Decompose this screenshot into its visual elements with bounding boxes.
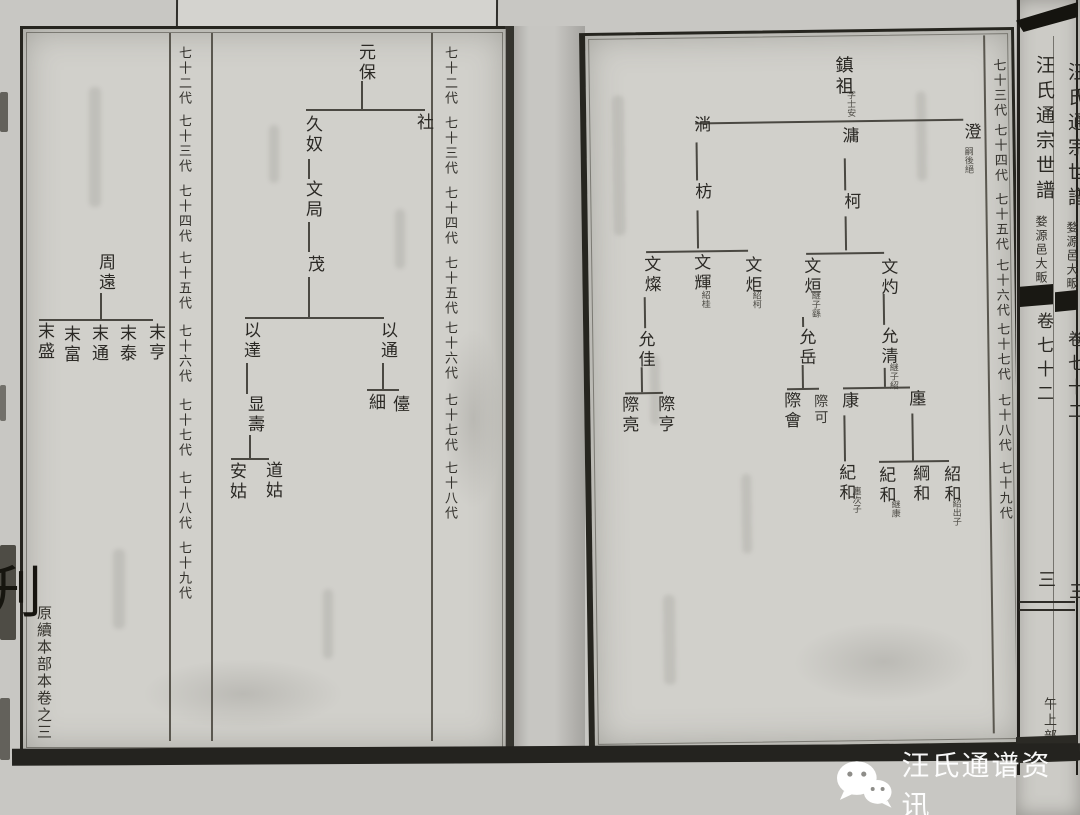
- connector-line: [845, 216, 847, 250]
- connector-line: [787, 388, 819, 390]
- connector-line: [879, 460, 949, 463]
- generation-label: 七十六代: [992, 258, 1012, 318]
- connector-line: [306, 109, 425, 111]
- left-page: 七十二代 七十三代 七十四代 七十五代 七十六代 七十七代 七十八代 七十九代 …: [20, 26, 514, 754]
- tree-node-annotation: 廛次子: [850, 486, 863, 513]
- page-number: 三: [1033, 570, 1059, 588]
- connector-line: [802, 317, 804, 327]
- tree-node: 久奴: [300, 115, 325, 155]
- tree-node: 元保: [353, 43, 378, 83]
- tree-node-annotation: 継子繇: [810, 291, 823, 318]
- connector-line: [231, 458, 269, 460]
- tree-node-annotation: 紹柯: [751, 291, 764, 309]
- tree-node-annotation: 紹出子: [951, 499, 964, 526]
- generation-label: 七十四代: [990, 123, 1010, 183]
- connector-line: [308, 222, 310, 252]
- connector-line: [883, 294, 885, 325]
- bleed-through-stain: [612, 95, 626, 235]
- tree-node: 安姑: [224, 462, 249, 502]
- tree-node: 文局: [300, 180, 325, 220]
- generation-label: 七十五代: [175, 251, 194, 311]
- book-subtitle: 婺源邑大畈: [1064, 221, 1080, 291]
- edge-smudge: [0, 92, 8, 132]
- edge-smudge: [0, 385, 6, 421]
- bleed-through-stain: [113, 549, 125, 629]
- paper-stain: [143, 659, 343, 729]
- page-number: 三: [1064, 582, 1080, 600]
- tree-node-annotation: 継康: [890, 500, 903, 518]
- connector-line: [308, 159, 310, 179]
- edge-smudge: [0, 698, 10, 760]
- tree-node: 末通: [86, 324, 111, 364]
- connector-line: [644, 297, 646, 328]
- tree-node-annotation: 紹桂: [700, 290, 713, 308]
- column-rule: [431, 33, 433, 741]
- tree-node: 綱和: [907, 464, 933, 504]
- connector-line: [844, 158, 846, 190]
- volume-label: 卷七十二: [1062, 330, 1080, 426]
- generation-label: 七十八代: [175, 471, 194, 531]
- tree-node: 末盛: [32, 322, 57, 362]
- book-subtitle: 婺源邑大畈: [1033, 215, 1050, 285]
- book-title: 汪氏通宗世譜: [1030, 55, 1057, 205]
- connector-line: [361, 81, 363, 109]
- connector-line: [884, 368, 886, 387]
- bleed-through-stain: [89, 87, 101, 207]
- generation-label: 七十四代: [175, 184, 194, 244]
- bleed-through-stain: [269, 125, 279, 183]
- spine-rule-line: [1019, 609, 1075, 611]
- tree-node: 廛: [903, 389, 928, 409]
- tree-node: 際亮: [616, 395, 642, 435]
- tree-node: 周遠: [93, 253, 118, 293]
- generation-label: 七十三代: [989, 58, 1009, 118]
- tree-node: 文輝: [688, 253, 714, 293]
- generation-label: 七十六代: [175, 324, 194, 384]
- tree-node: 文燦: [638, 255, 664, 295]
- connector-line: [100, 293, 102, 319]
- tree-node-annotation: 嗣後絕: [963, 147, 976, 174]
- connector-line: [911, 413, 914, 460]
- column-rule: [211, 33, 213, 741]
- connector-line: [696, 210, 699, 248]
- tree-node: 以通: [375, 321, 400, 361]
- tree-node: 末富: [58, 325, 83, 365]
- tree-node: 儓: [387, 395, 412, 415]
- bleed-through-stain: [323, 589, 333, 659]
- tree-node: 澄: [958, 122, 983, 142]
- connector-line: [245, 317, 384, 319]
- bleed-through-stain: [395, 209, 405, 269]
- volume-label: 卷七十二: [1031, 312, 1056, 408]
- scanned-genealogy-spread: 七十二代 七十三代 七十四代 七十五代 七十六代 七十七代 七十八代 七十九代 …: [0, 0, 1080, 815]
- tree-node: 滽: [836, 126, 861, 146]
- connector-line: [696, 142, 699, 180]
- tree-node: 際會: [778, 391, 804, 431]
- tree-node: 末亨: [143, 323, 168, 363]
- spine-edge-line: [1017, 0, 1020, 775]
- tree-node: 康: [836, 391, 861, 411]
- ink-wedge: [1020, 284, 1053, 307]
- connector-line: [382, 363, 384, 389]
- tree-node: 末泰: [114, 324, 139, 364]
- bleed-through-stain: [916, 91, 927, 181]
- tree-node: 細: [363, 393, 388, 413]
- generation-label: 七十八代: [994, 393, 1014, 453]
- generation-label: 七十九代: [995, 461, 1015, 521]
- connector-line: [308, 277, 310, 317]
- spine-rule-line: [1019, 601, 1075, 603]
- connector-line: [246, 363, 248, 394]
- tree-node: 允清: [875, 327, 901, 367]
- right-page: 七十三代 七十四代 七十五代 七十六代 七十七代 七十八代 七十九代 鎮祖 字士…: [579, 27, 1024, 751]
- ink-wedge: [1016, 2, 1078, 32]
- generation-label: 七十三代: [175, 114, 194, 174]
- tree-node: 茂: [302, 255, 327, 275]
- connector-line: [802, 365, 804, 388]
- page-gutter: [505, 26, 585, 758]
- generation-label: 七十三代: [441, 116, 460, 176]
- tree-node: 淌: [688, 115, 713, 135]
- connector-line: [39, 319, 153, 321]
- connector-line: [806, 252, 884, 255]
- wechat-icon: [836, 758, 894, 810]
- book-spine: 汪氏通宗世譜 婺源邑大畈 卷七十二 三 汪氏通宗世譜 婺源邑大畈 卷七十二 三 …: [1016, 0, 1080, 815]
- bleed-through-stain: [650, 355, 661, 425]
- connector-line: [641, 367, 643, 392]
- generation-label: 七十二代: [441, 46, 460, 106]
- bleed-through-stain: [663, 595, 676, 685]
- generation-label: 七十四代: [441, 186, 460, 246]
- book-title: 汪氏通宗世譜: [1062, 62, 1080, 212]
- ink-wedge: [1055, 290, 1077, 312]
- tree-node: 显壽: [242, 395, 267, 435]
- generation-label: 七十七代: [175, 398, 194, 458]
- generation-label: 七十九代: [175, 541, 194, 601]
- tree-node: 文灼: [875, 258, 901, 298]
- watermark-text: 汪氏通谱资讯: [902, 744, 1080, 815]
- tree-node: 允岳: [793, 328, 819, 368]
- tree-node: 道姑: [260, 461, 285, 501]
- tree-node: 際可: [811, 394, 831, 426]
- paper-stain: [443, 329, 503, 509]
- generation-label: 七十五代: [991, 192, 1011, 252]
- connector-line: [367, 389, 399, 391]
- watermark: 汪氏通谱资讯: [836, 744, 1080, 815]
- bleed-through-stain: [741, 474, 752, 554]
- tree-node-annotation: 字士安: [845, 90, 858, 117]
- column-rule: [169, 33, 171, 741]
- generation-label: 七十五代: [441, 256, 460, 316]
- paper-stain: [793, 621, 974, 704]
- tree-node: 柯: [838, 192, 863, 212]
- connector-line: [843, 415, 846, 461]
- tree-node: 枋: [689, 182, 714, 202]
- connector-line: [249, 435, 251, 458]
- generation-label: 七十七代: [993, 322, 1013, 382]
- cropped-edge-character: 刋: [0, 548, 42, 629]
- generation-label: 七十二代: [175, 46, 194, 106]
- tree-node: 以達: [238, 321, 263, 361]
- tree-node: 社: [411, 113, 436, 133]
